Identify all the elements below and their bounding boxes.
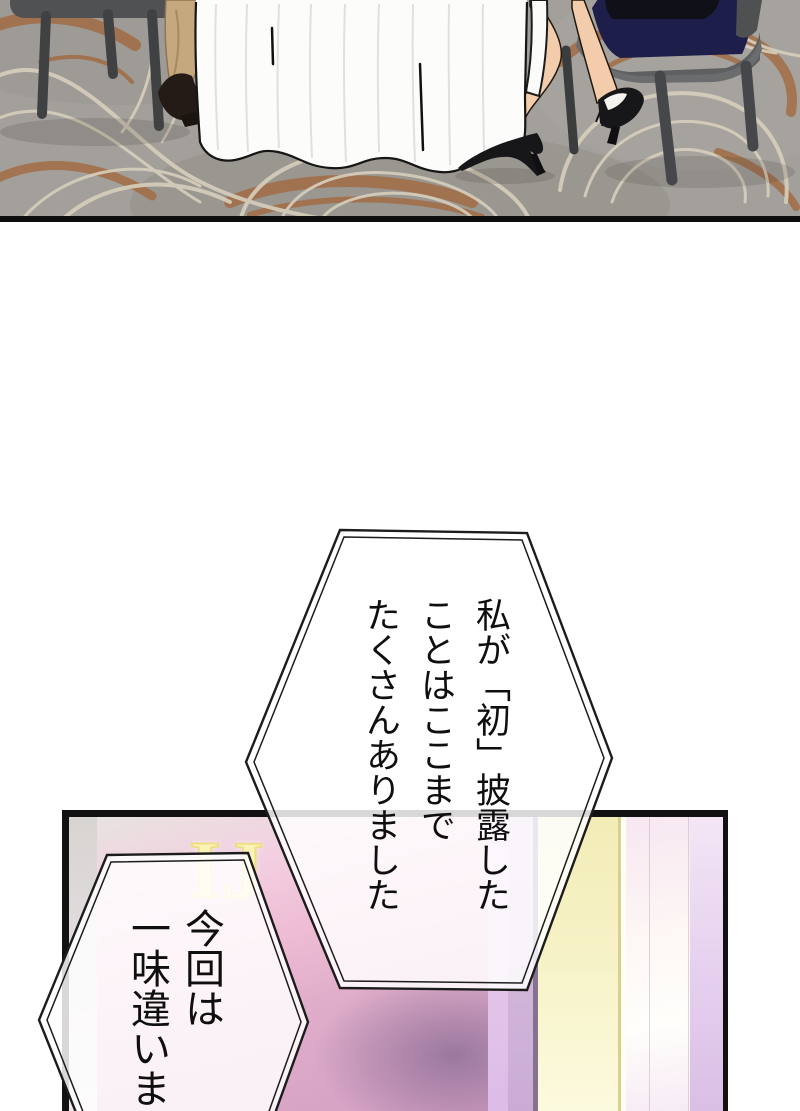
manga-page: IJ 私が「初」披露した ことはここまで たくさんありました 今回は 一味違いま… [0,0,800,1111]
bubble1-text: 私が「初」披露した ことはここまで たくさんありました [350,597,518,945]
top-scene-panel [0,0,800,222]
bubble2-text: 今回は 一味違います [116,908,228,1111]
stage-band-lavender [690,817,723,1111]
bubble2-line1: 今回は [174,908,228,1111]
stage-band-cream [626,817,690,1111]
stage-faint-line [649,817,650,1111]
panel-border-bottom [0,216,800,222]
bubble1-line2: ことはここまで [408,597,463,945]
bubble2-line2: 一味違います [120,908,174,1111]
stage-faint-line [688,817,689,1111]
bubble1-line1: 私が「初」披露した [463,597,518,945]
chair-shadow-right [605,156,795,188]
bubble1-line3: たくさんありました [353,597,408,945]
black-skirt [605,0,720,19]
